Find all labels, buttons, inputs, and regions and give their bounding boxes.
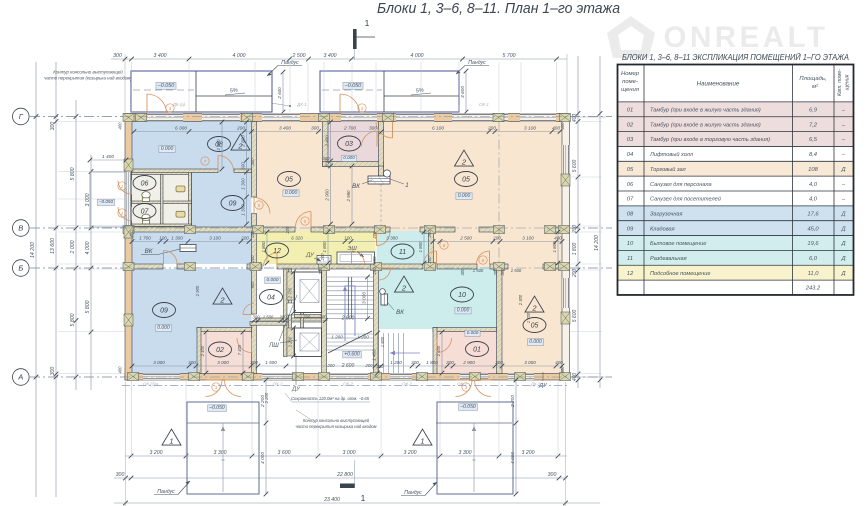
svg-text:3 200: 3 200 bbox=[150, 450, 163, 456]
svg-text:1 800: 1 800 bbox=[322, 241, 327, 253]
svg-text:2 500: 2 500 bbox=[292, 53, 306, 59]
svg-text:1 300: 1 300 bbox=[241, 204, 246, 216]
svg-text:200: 200 bbox=[319, 315, 328, 320]
svg-text:01: 01 bbox=[473, 346, 481, 353]
svg-text:6,9: 6,9 bbox=[809, 108, 818, 114]
svg-text:3 100: 3 100 bbox=[522, 236, 534, 241]
svg-text:06: 06 bbox=[141, 180, 149, 187]
svg-text:300: 300 bbox=[50, 122, 56, 131]
svg-text:3 000: 3 000 bbox=[153, 360, 165, 365]
svg-text:300: 300 bbox=[250, 158, 255, 166]
svg-text:3 000: 3 000 bbox=[362, 292, 368, 304]
svg-text:200: 200 bbox=[364, 363, 373, 368]
svg-text:Контур консольно выступающей: Контур консольно выступающей bbox=[53, 70, 123, 75]
svg-text:200: 200 bbox=[240, 236, 249, 241]
svg-text:0.000: 0.000 bbox=[458, 193, 471, 199]
svg-text:08: 08 bbox=[627, 211, 634, 217]
svg-text:Пандус: Пандус bbox=[281, 60, 299, 66]
svg-text:2 400: 2 400 bbox=[200, 345, 205, 357]
svg-text:Кат. поме-: Кат. поме- bbox=[837, 69, 843, 96]
svg-text:0.000: 0.000 bbox=[343, 155, 355, 160]
svg-text:м²: м² bbox=[812, 84, 819, 90]
svg-text:–0.050: –0.050 bbox=[344, 83, 362, 89]
svg-text:1 500: 1 500 bbox=[263, 315, 274, 320]
svg-text:2 400: 2 400 bbox=[436, 345, 441, 357]
svg-text:10: 10 bbox=[627, 241, 634, 247]
svg-text:–0.050: –0.050 bbox=[98, 199, 113, 204]
svg-text:02: 02 bbox=[216, 347, 224, 354]
svg-text:3 000: 3 000 bbox=[217, 360, 229, 365]
svg-text:–0.050: –0.050 bbox=[459, 404, 476, 410]
svg-text:07: 07 bbox=[627, 197, 634, 203]
svg-text:23 400: 23 400 bbox=[323, 497, 340, 503]
svg-text:0.000: 0.000 bbox=[266, 277, 278, 283]
svg-text:Лифтовый холл: Лифтовый холл bbox=[649, 151, 694, 158]
svg-text:2 000: 2 000 bbox=[70, 240, 76, 254]
svg-text:Блоки 1, 3–6, 8–11. План 1: Блоки 1, 3–6, 8–11. План 1–го этажа bbox=[377, 0, 620, 17]
svg-text:ДУ: ДУ bbox=[291, 387, 301, 393]
svg-text:4 000: 4 000 bbox=[85, 241, 91, 254]
svg-text:Кладовая: Кладовая bbox=[650, 226, 675, 232]
svg-text:1 800: 1 800 bbox=[418, 241, 423, 253]
svg-text:2 800: 2 800 bbox=[241, 135, 246, 148]
svg-text:ВК: ВК bbox=[352, 183, 360, 190]
svg-text:Тамбур (при входе в жилую част: Тамбур (при входе в жилую часть здания) bbox=[650, 108, 761, 114]
svg-text:05: 05 bbox=[531, 322, 539, 329]
svg-text:4,0: 4,0 bbox=[809, 197, 818, 203]
svg-text:05: 05 bbox=[627, 167, 634, 173]
svg-text:2: 2 bbox=[219, 296, 225, 305]
svg-text:3 600: 3 600 bbox=[278, 450, 291, 456]
svg-text:Сохранность 120.0м² на др. отм: Сохранность 120.0м² на др. отм. –0.65 bbox=[291, 396, 370, 401]
svg-text:200: 200 bbox=[250, 255, 255, 264]
svg-text:поме-: поме- bbox=[622, 79, 638, 85]
svg-text:3 380: 3 380 bbox=[386, 236, 398, 241]
svg-text:щения: щения bbox=[845, 74, 851, 90]
svg-text:2 600: 2 600 bbox=[341, 316, 355, 322]
svg-text:19,6: 19,6 bbox=[807, 241, 819, 247]
svg-text:части перекрытия козырька над: части перекрытия козырька над входом bbox=[296, 424, 377, 429]
svg-text:1 800: 1 800 bbox=[572, 243, 578, 256]
svg-text:200: 200 bbox=[487, 126, 496, 132]
svg-text:300: 300 bbox=[369, 126, 377, 132]
svg-text:5 800: 5 800 bbox=[70, 313, 76, 326]
svg-text:04: 04 bbox=[627, 152, 633, 158]
svg-text:5 700: 5 700 bbox=[503, 53, 516, 59]
svg-text:300: 300 bbox=[495, 360, 503, 365]
svg-text:6,0: 6,0 bbox=[809, 256, 818, 262]
svg-text:12: 12 bbox=[273, 248, 281, 255]
svg-text:09: 09 bbox=[160, 307, 168, 314]
svg-text:1: 1 bbox=[405, 182, 408, 189]
svg-text:1 200: 1 200 bbox=[390, 360, 402, 365]
svg-text:Д: Д bbox=[840, 167, 845, 173]
svg-text:ДУ: ДУ bbox=[538, 383, 548, 389]
svg-text:1 300: 1 300 bbox=[171, 236, 183, 241]
svg-text:7 400: 7 400 bbox=[237, 344, 242, 355]
svg-text:–0.050: –0.050 bbox=[157, 83, 175, 89]
svg-text:400: 400 bbox=[118, 122, 123, 130]
svg-text:400: 400 bbox=[560, 122, 565, 130]
svg-text:1 700: 1 700 bbox=[139, 236, 151, 241]
svg-text:ВК: ВК bbox=[396, 309, 404, 316]
svg-text:2 900: 2 900 bbox=[195, 285, 200, 297]
svg-text:05: 05 bbox=[462, 176, 470, 183]
svg-text:1 800: 1 800 bbox=[380, 336, 385, 347]
svg-text:1 800: 1 800 bbox=[426, 360, 438, 365]
svg-text:11: 11 bbox=[399, 249, 406, 256]
svg-text:14 200: 14 200 bbox=[594, 235, 600, 251]
svg-text:ДУ: ДУ bbox=[305, 253, 315, 259]
svg-text:7,2: 7,2 bbox=[809, 122, 818, 128]
svg-text:3 100: 3 100 bbox=[524, 126, 536, 132]
svg-text:Санузел для персонала: Санузел для персонала bbox=[650, 182, 712, 188]
svg-text:200: 200 bbox=[372, 256, 377, 265]
svg-text:200: 200 bbox=[372, 231, 377, 240]
svg-text:100: 100 bbox=[159, 236, 167, 241]
svg-text:2: 2 bbox=[461, 158, 467, 167]
svg-text:2 900: 2 900 bbox=[462, 360, 475, 365]
svg-text:200: 200 bbox=[279, 315, 288, 320]
svg-text:1 300: 1 300 bbox=[241, 178, 246, 190]
svg-text:Контур консольно выступающей: Контур консольно выступающей bbox=[303, 418, 370, 423]
svg-text:2 800: 2 800 bbox=[216, 139, 221, 152]
svg-text:5 800: 5 800 bbox=[85, 300, 91, 313]
svg-text:6 100: 6 100 bbox=[432, 126, 444, 132]
svg-text:400: 400 bbox=[118, 366, 123, 374]
svg-text:Пандус: Пандус bbox=[157, 489, 175, 495]
svg-text:200: 200 bbox=[320, 253, 325, 262]
svg-text:1 800: 1 800 bbox=[261, 241, 266, 253]
svg-text:Д: Д bbox=[840, 271, 845, 277]
svg-text:2 900: 2 900 bbox=[325, 189, 330, 202]
svg-text:3 400: 3 400 bbox=[154, 53, 167, 59]
svg-text:14 200: 14 200 bbox=[30, 242, 36, 258]
svg-text:0.000: 0.000 bbox=[457, 308, 470, 314]
svg-text:6 320: 6 320 bbox=[291, 236, 303, 241]
svg-text:3 100: 3 100 bbox=[209, 236, 221, 241]
svg-text:Пандус: Пандус bbox=[468, 60, 486, 66]
svg-text:0.000: 0.000 bbox=[161, 146, 174, 152]
svg-text:1: 1 bbox=[169, 437, 173, 446]
svg-text:щения: щения bbox=[621, 87, 640, 93]
svg-text:108: 108 bbox=[808, 167, 818, 173]
svg-text:ЛШ: ЛШ bbox=[268, 343, 279, 349]
svg-text:1 400: 1 400 bbox=[102, 154, 114, 160]
svg-text:5%: 5% bbox=[416, 87, 425, 94]
svg-text:3 400: 3 400 bbox=[324, 53, 337, 59]
svg-text:4 000: 4 000 bbox=[260, 452, 266, 464]
svg-text:300: 300 bbox=[113, 53, 122, 59]
svg-text:ВК: ВК bbox=[145, 248, 153, 255]
svg-text:0.000: 0.000 bbox=[285, 190, 298, 196]
svg-text:09: 09 bbox=[229, 200, 237, 207]
svg-text:Д: Д bbox=[840, 211, 845, 217]
svg-text:Подсобное помещение: Подсобное помещение bbox=[650, 271, 710, 277]
svg-text:1 200: 1 200 bbox=[357, 335, 369, 340]
svg-text:части перекрытия (козырька над: части перекрытия (козырька над входом) bbox=[44, 76, 132, 81]
svg-text:400: 400 bbox=[129, 230, 134, 238]
svg-text:02: 02 bbox=[627, 122, 634, 128]
svg-text:А: А bbox=[17, 373, 23, 382]
svg-text:Д: Д bbox=[840, 226, 845, 232]
svg-text:300: 300 bbox=[548, 472, 557, 478]
svg-text:243.2: 243.2 bbox=[805, 286, 821, 292]
svg-text:45,0: 45,0 bbox=[807, 226, 819, 232]
svg-text:1 500: 1 500 bbox=[511, 268, 522, 273]
svg-text:300: 300 bbox=[50, 367, 56, 376]
svg-text:03: 03 bbox=[345, 141, 353, 148]
svg-text:300: 300 bbox=[188, 360, 196, 365]
svg-text:04: 04 bbox=[267, 294, 275, 301]
svg-text:4,0: 4,0 bbox=[809, 182, 818, 188]
svg-text:400: 400 bbox=[560, 366, 565, 374]
svg-text:300: 300 bbox=[411, 360, 419, 365]
svg-text:Наименование: Наименование bbox=[697, 81, 740, 88]
svg-text:13 600: 13 600 bbox=[50, 238, 56, 254]
svg-text:200: 200 bbox=[492, 236, 501, 241]
svg-text:1: 1 bbox=[420, 437, 424, 446]
svg-text:Б: Б bbox=[18, 264, 23, 273]
svg-text:5 600: 5 600 bbox=[572, 160, 578, 173]
svg-text:ОК-1: ОК-1 bbox=[479, 102, 489, 107]
svg-text:1 700: 1 700 bbox=[526, 312, 531, 323]
svg-text:1 200: 1 200 bbox=[331, 335, 343, 340]
svg-text:1 200: 1 200 bbox=[288, 336, 293, 347]
svg-text:3 300: 3 300 bbox=[214, 450, 227, 456]
svg-text:В: В bbox=[18, 224, 23, 233]
svg-text:17,6: 17,6 bbox=[807, 211, 819, 217]
svg-text:3 200: 3 200 bbox=[404, 450, 417, 456]
svg-text:5 800: 5 800 bbox=[70, 167, 76, 180]
svg-text:3 000: 3 000 bbox=[343, 450, 356, 456]
svg-text:300: 300 bbox=[323, 156, 331, 161]
svg-text:3 300: 3 300 bbox=[459, 450, 472, 456]
svg-text:2 300: 2 300 bbox=[518, 294, 523, 306]
svg-text:300: 300 bbox=[253, 315, 261, 320]
svg-text:1: 1 bbox=[361, 493, 366, 503]
svg-text:2 700: 2 700 bbox=[288, 287, 293, 299]
svg-text:Номер: Номер bbox=[621, 71, 640, 77]
svg-text:300: 300 bbox=[460, 268, 465, 276]
svg-text:2 400: 2 400 bbox=[325, 135, 330, 148]
svg-text:0.000: 0.000 bbox=[529, 339, 542, 345]
svg-text:03: 03 bbox=[627, 137, 634, 143]
svg-text:200: 200 bbox=[250, 230, 255, 239]
svg-text:400: 400 bbox=[555, 360, 563, 365]
svg-text:Тамбур (при входе в жилую част: Тамбур (при входе в жилую часть здания) bbox=[650, 122, 761, 128]
svg-text:200: 200 bbox=[285, 226, 290, 235]
svg-text:200: 200 bbox=[318, 267, 323, 276]
svg-text:5 600: 5 600 bbox=[572, 310, 578, 323]
svg-text:1 400: 1 400 bbox=[372, 349, 377, 361]
svg-text:Тамбур (при входе в торговую ч: Тамбур (при входе в торговую часть здани… bbox=[650, 137, 770, 143]
svg-text:100: 100 bbox=[344, 236, 352, 241]
svg-text:6 300: 6 300 bbox=[175, 126, 187, 132]
svg-text:Торговый зал: Торговый зал bbox=[650, 166, 687, 173]
svg-text:09: 09 bbox=[627, 226, 634, 232]
svg-text:6,5: 6,5 bbox=[809, 137, 818, 143]
svg-text:200: 200 bbox=[427, 256, 432, 265]
svg-text:4 000: 4 000 bbox=[233, 53, 246, 59]
svg-text:4 000: 4 000 bbox=[510, 452, 516, 464]
svg-text:1: 1 bbox=[365, 18, 370, 28]
svg-text:300: 300 bbox=[446, 360, 454, 365]
svg-text:2 700: 2 700 bbox=[343, 126, 356, 132]
svg-text:ДК-1: ДК-1 bbox=[296, 102, 307, 107]
svg-text:БЛОКИ 1, 3–6, 8–11 ЭКСПЛИКА: БЛОКИ 1, 3–6, 8–11 ЭКСПЛИКАЦИЯ ПОМЕЩЕНИЙ… bbox=[622, 51, 849, 62]
svg-text:300: 300 bbox=[500, 268, 505, 276]
svg-text:300: 300 bbox=[250, 360, 258, 365]
svg-text:11: 11 bbox=[627, 256, 633, 262]
svg-text:300: 300 bbox=[311, 126, 319, 132]
svg-text:10: 10 bbox=[458, 292, 466, 299]
svg-text:11,0: 11,0 bbox=[808, 271, 820, 277]
svg-text:400: 400 bbox=[572, 114, 578, 123]
svg-text:200: 200 bbox=[236, 126, 245, 132]
svg-text:Д: Д bbox=[840, 241, 845, 247]
svg-text:2 200: 2 200 bbox=[264, 392, 269, 404]
svg-text:Бытовое помещение: Бытовое помещение bbox=[650, 241, 706, 247]
svg-text:8,4: 8,4 bbox=[809, 152, 817, 158]
svg-text:1 700: 1 700 bbox=[300, 315, 311, 320]
svg-text:3 600: 3 600 bbox=[460, 86, 466, 98]
svg-text:Д: Д bbox=[840, 256, 845, 262]
svg-text:+0.600: +0.600 bbox=[344, 352, 360, 358]
svg-text:600: 600 bbox=[241, 162, 246, 170]
svg-text:Раздевальная: Раздевальная bbox=[650, 256, 687, 262]
svg-text:Санузел для посетителей: Санузел для посетителей bbox=[650, 196, 721, 203]
svg-text:1 800: 1 800 bbox=[552, 241, 557, 253]
svg-text:1 500: 1 500 bbox=[265, 360, 277, 365]
svg-text:200: 200 bbox=[372, 267, 377, 276]
svg-text:3 000: 3 000 bbox=[524, 360, 536, 365]
svg-text:5%: 5% bbox=[230, 87, 239, 94]
svg-text:01: 01 bbox=[627, 108, 633, 114]
svg-text:2 980: 2 980 bbox=[346, 190, 351, 203]
svg-text:200: 200 bbox=[427, 230, 432, 239]
svg-text:2 600: 2 600 bbox=[277, 87, 282, 100]
svg-text:3 200: 3 200 bbox=[522, 450, 535, 456]
svg-text:–0.050: –0.050 bbox=[208, 405, 225, 411]
svg-text:200: 200 bbox=[493, 268, 498, 277]
svg-text:05: 05 bbox=[285, 176, 293, 183]
svg-text:4 000: 4 000 bbox=[411, 53, 424, 59]
svg-text:12: 12 bbox=[627, 271, 634, 277]
svg-text:1 500: 1 500 bbox=[473, 268, 484, 273]
svg-text:07: 07 bbox=[141, 208, 150, 215]
svg-text:2 500: 2 500 bbox=[459, 236, 472, 241]
svg-text:2 200: 2 200 bbox=[510, 395, 516, 408]
svg-text:900: 900 bbox=[250, 281, 255, 289]
svg-text:0.000: 0.000 bbox=[467, 330, 479, 335]
svg-text:22 800: 22 800 bbox=[336, 472, 353, 478]
svg-text:0.000: 0.000 bbox=[157, 325, 170, 331]
svg-text:2: 2 bbox=[531, 304, 537, 313]
svg-text:06: 06 bbox=[627, 182, 634, 188]
svg-text:300: 300 bbox=[377, 364, 385, 369]
svg-text:300: 300 bbox=[116, 472, 125, 478]
svg-text:2: 2 bbox=[401, 284, 407, 293]
svg-text:Пандус: Пандус bbox=[404, 490, 422, 496]
svg-text:3 400: 3 400 bbox=[279, 126, 291, 132]
svg-text:Загрузочная: Загрузочная bbox=[650, 211, 683, 217]
svg-text:Площадь,: Площадь, bbox=[799, 76, 826, 82]
svg-text:ONREALT: ONREALT bbox=[664, 21, 829, 54]
svg-text:200: 200 bbox=[326, 363, 335, 368]
